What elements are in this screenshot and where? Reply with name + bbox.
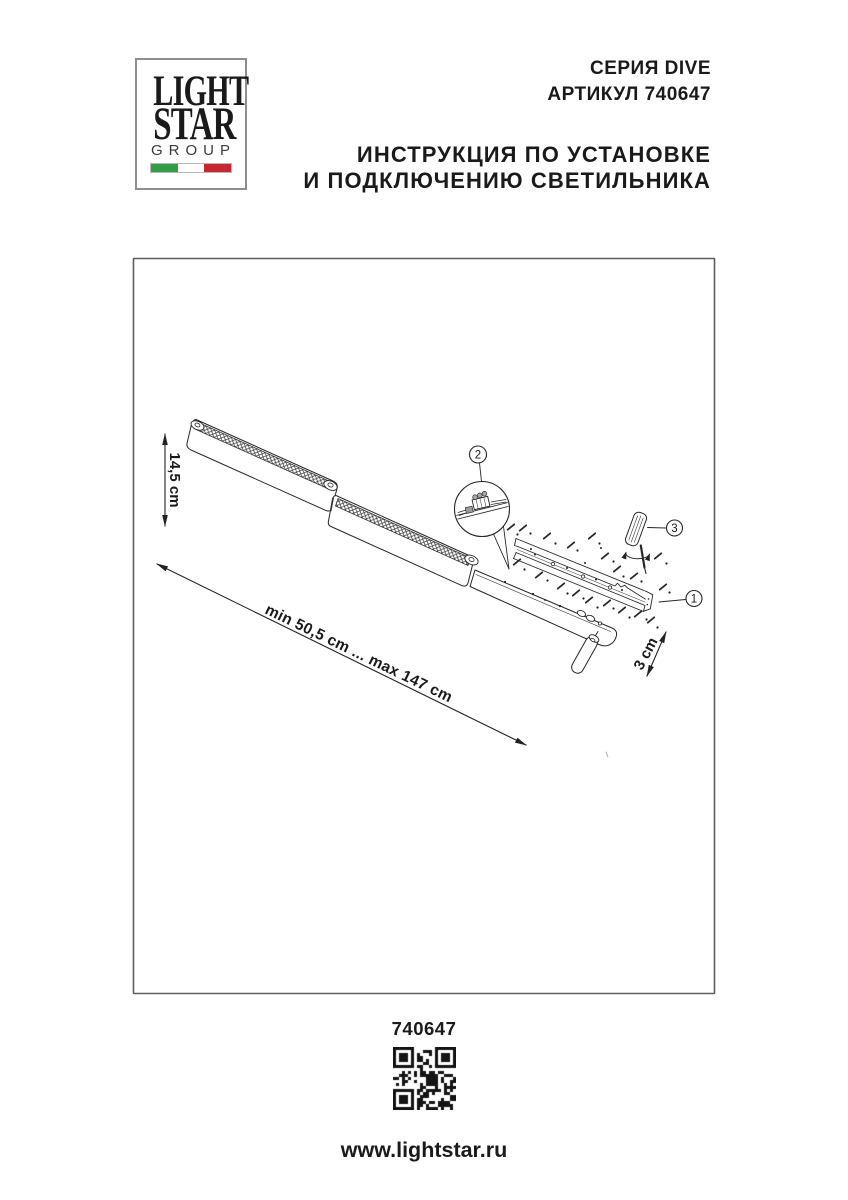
callout-3-number: 3 [671,523,677,535]
callout-2-number: 2 [475,450,481,462]
dim-height-label: 14,5 cm [166,452,183,507]
callout-1-number: 1 [691,594,697,606]
diagram-frame [134,259,715,994]
footer-article-number: 740647 [0,1018,848,1040]
qr-code [393,1047,456,1110]
footer-website: www.lightstar.ru [0,1138,848,1163]
instruction-page: LIGHT STAR GROUP СЕРИЯ DIVE АРТИКУЛ 7406… [0,0,848,1200]
